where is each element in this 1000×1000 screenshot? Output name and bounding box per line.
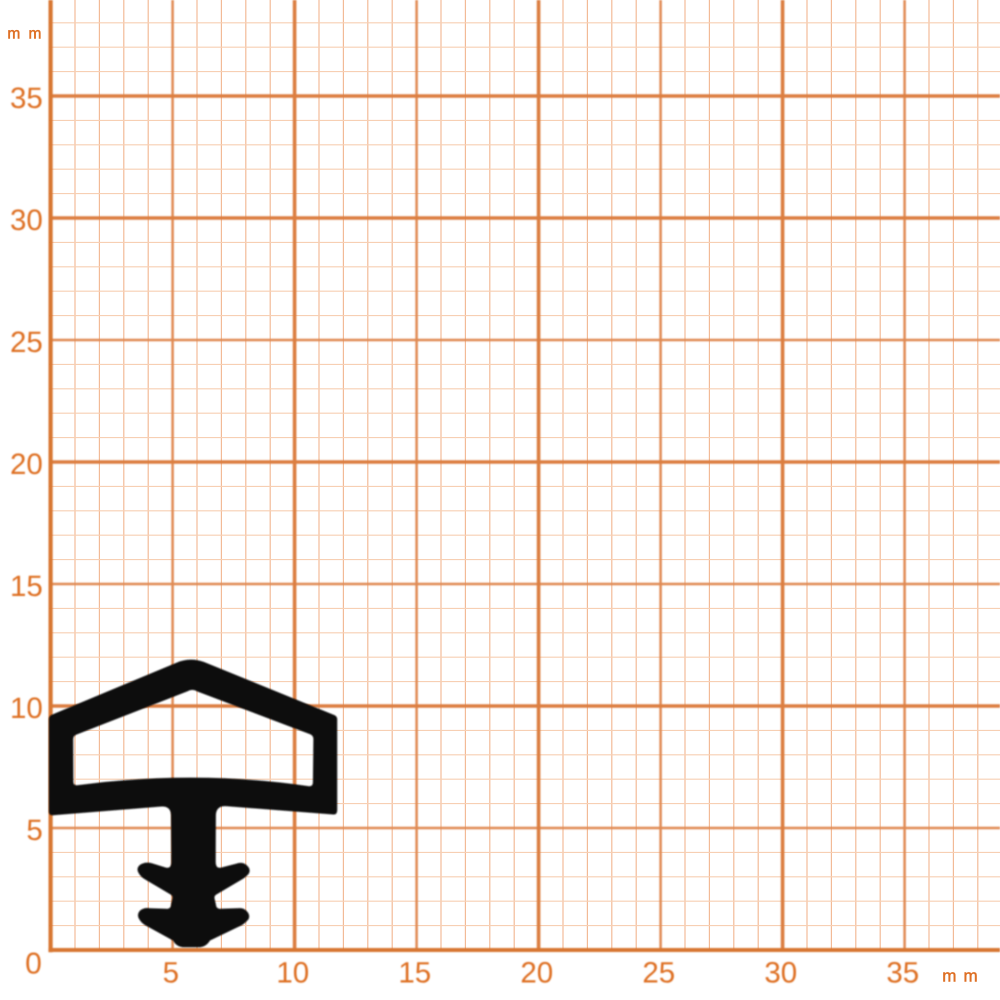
svg-text:15: 15 bbox=[10, 570, 43, 603]
svg-text:20: 20 bbox=[10, 448, 43, 481]
svg-text:30: 30 bbox=[764, 956, 797, 989]
svg-text:25: 25 bbox=[10, 326, 43, 359]
svg-text:35: 35 bbox=[10, 82, 43, 115]
svg-text:35: 35 bbox=[886, 956, 919, 989]
svg-text:5: 5 bbox=[26, 814, 42, 847]
svg-text:20: 20 bbox=[520, 956, 553, 989]
svg-text:10: 10 bbox=[276, 956, 309, 989]
svg-text:10: 10 bbox=[10, 692, 43, 725]
svg-text:30: 30 bbox=[10, 204, 43, 237]
svg-text:mm: mm bbox=[942, 967, 984, 986]
svg-text:25: 25 bbox=[642, 956, 675, 989]
svg-text:5: 5 bbox=[163, 956, 179, 989]
svg-text:mm: mm bbox=[7, 26, 49, 43]
svg-text:0: 0 bbox=[25, 947, 42, 980]
svg-text:15: 15 bbox=[398, 956, 431, 989]
